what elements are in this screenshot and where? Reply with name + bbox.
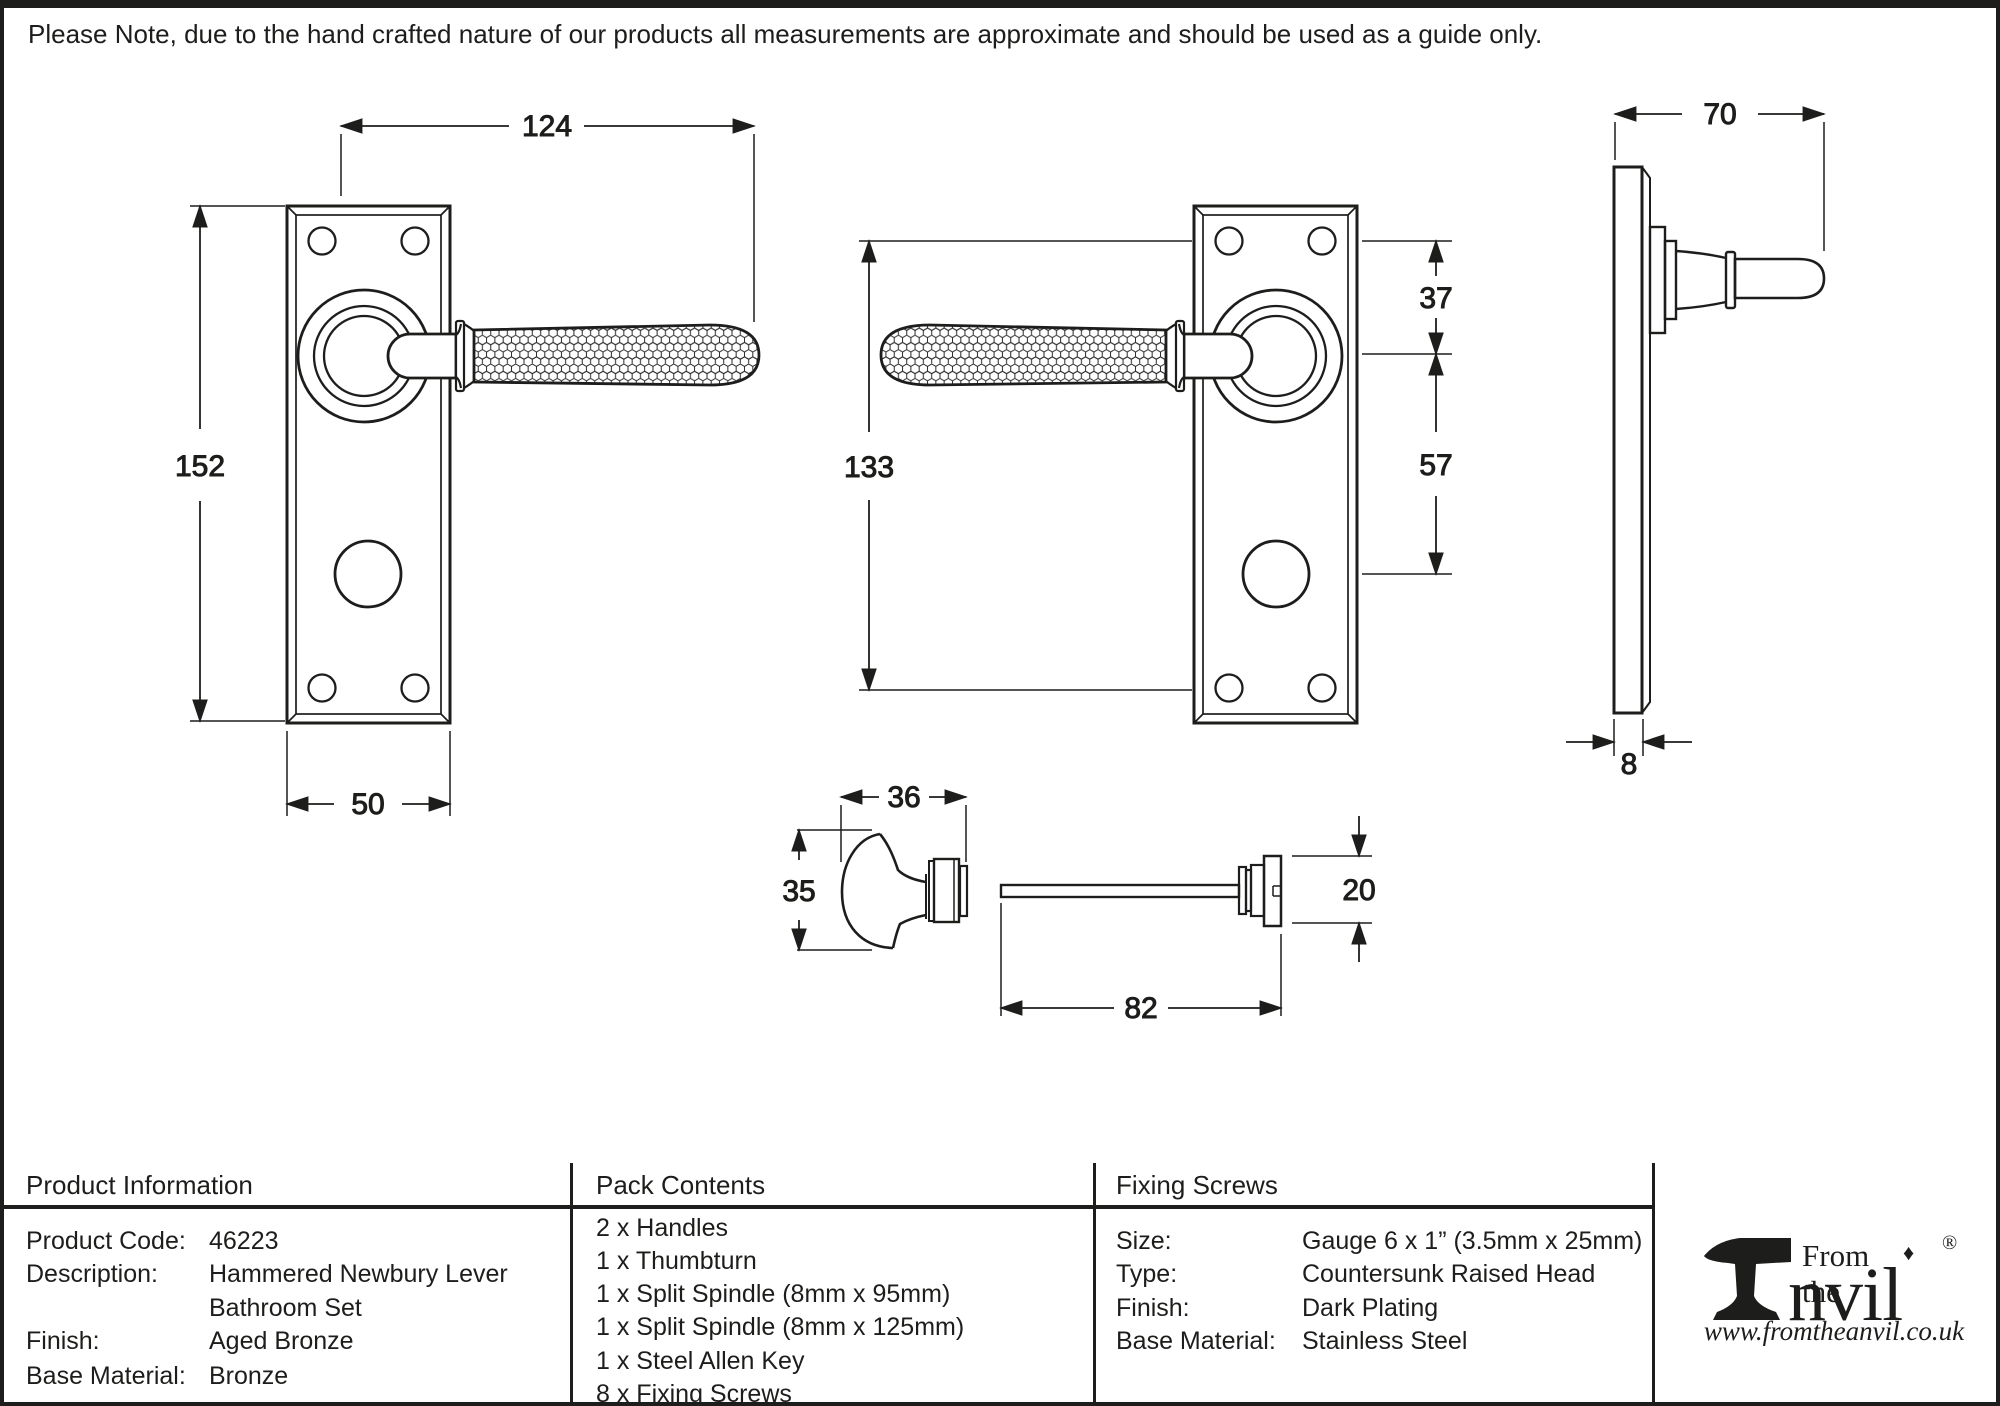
dim-label-35: 35 [782, 875, 815, 908]
screw-type-label: Type: [1116, 1259, 1177, 1289]
dim-label-133: 133 [844, 451, 894, 484]
finish-value: Aged Bronze [209, 1326, 354, 1356]
thumbturn-knob [842, 834, 967, 948]
reverse-lever-collar [1166, 321, 1184, 391]
note-table-separator [4, 4, 1996, 7]
screw-size-value: Gauge 6 x 1” (3.5mm x 25mm) [1302, 1226, 1642, 1256]
pack-item: 1 x Split Spindle (8mm x 95mm) [596, 1279, 950, 1309]
side-lever-knob [1735, 259, 1824, 298]
product-info-header: Product Information [26, 1163, 253, 1207]
screw-size-label: Size: [1116, 1226, 1172, 1256]
spec-sheet-page: 124 152 50 [0, 0, 2000, 1406]
product-code-label: Product Code: [26, 1226, 186, 1256]
dim-label-20: 20 [1342, 874, 1375, 907]
reverse-lever-neck [1184, 334, 1252, 378]
base-material-label: Base Material: [26, 1361, 186, 1391]
table-divider-3 [1652, 1163, 1655, 1402]
measurement-note: Please Note, due to the hand crafted nat… [4, 4, 1996, 64]
screw-finish-label: Finish: [1116, 1293, 1190, 1323]
pack-item: 1 x Steel Allen Key [596, 1346, 804, 1376]
front-dim-width [341, 126, 754, 322]
front-thumbturn-hole [335, 541, 401, 607]
screw-material-value: Stainless Steel [1302, 1326, 1467, 1356]
pack-item: 2 x Handles [596, 1213, 728, 1243]
screw-material-label: Base Material: [1116, 1326, 1276, 1356]
reverse-screw-holes [1216, 228, 1336, 702]
reverse-lever-grip [881, 325, 1166, 385]
product-code-value: 46223 [209, 1226, 279, 1256]
brand-website: www.fromtheanvil.co.uk [1664, 1316, 2000, 1347]
thumbturn-drawing: 36 35 82 20 [782, 781, 1375, 1025]
dim-label-57: 57 [1419, 449, 1452, 482]
description-value-2: Bathroom Set [209, 1293, 362, 1323]
side-view-drawing: 70 8 [1566, 98, 1824, 781]
dim-label-8: 8 [1621, 748, 1638, 781]
front-backplate [287, 206, 450, 723]
front-lever-grip [474, 325, 759, 385]
side-backplate [1614, 167, 1642, 713]
thumbturn-release [1239, 856, 1281, 926]
table-divider-1 [570, 1163, 573, 1402]
fixing-screws-header: Fixing Screws [1116, 1163, 1278, 1207]
front-view-drawing: 124 152 50 [175, 110, 759, 821]
dim-label-152: 152 [175, 450, 225, 483]
front-screw-holes [309, 228, 429, 702]
side-dim-projection [1615, 114, 1824, 251]
pack-item: 1 x Thumbturn [596, 1246, 757, 1276]
diamond-icon: ♦ [1903, 1240, 1914, 1266]
dim-label-50: 50 [351, 788, 384, 821]
screw-type-value: Countersunk Raised Head [1302, 1259, 1595, 1289]
dim-label-36: 36 [887, 781, 920, 814]
technical-drawing-canvas: 124 152 50 [4, 4, 1996, 1096]
reverse-dim-height [859, 241, 1192, 690]
reverse-backplate [1194, 206, 1357, 723]
dim-label-124: 124 [522, 110, 572, 143]
dim-label-82: 82 [1124, 992, 1157, 1025]
front-lever-collar [456, 321, 474, 391]
table-divider-2 [1093, 1163, 1096, 1402]
pack-item: 8 x Fixing Screws [596, 1379, 792, 1406]
thumbturn-spindle-rod [1001, 885, 1239, 897]
finish-label: Finish: [26, 1326, 100, 1356]
description-label: Description: [26, 1259, 158, 1289]
pack-item: 1 x Split Spindle (8mm x 125mm) [596, 1312, 964, 1342]
base-material-value: Bronze [209, 1361, 288, 1391]
reverse-view-drawing: 133 37 57 [844, 206, 1453, 723]
description-value: Hammered Newbury Lever [209, 1259, 508, 1289]
front-lever-neck [388, 334, 456, 378]
side-rose-profile [1650, 227, 1735, 333]
pack-contents-header: Pack Contents [596, 1163, 765, 1207]
dim-label-70: 70 [1703, 98, 1736, 131]
reverse-thumbturn-hole [1243, 541, 1309, 607]
dim-label-37: 37 [1419, 282, 1452, 315]
registered-mark: ® [1942, 1232, 1957, 1255]
screw-finish-value: Dark Plating [1302, 1293, 1438, 1323]
